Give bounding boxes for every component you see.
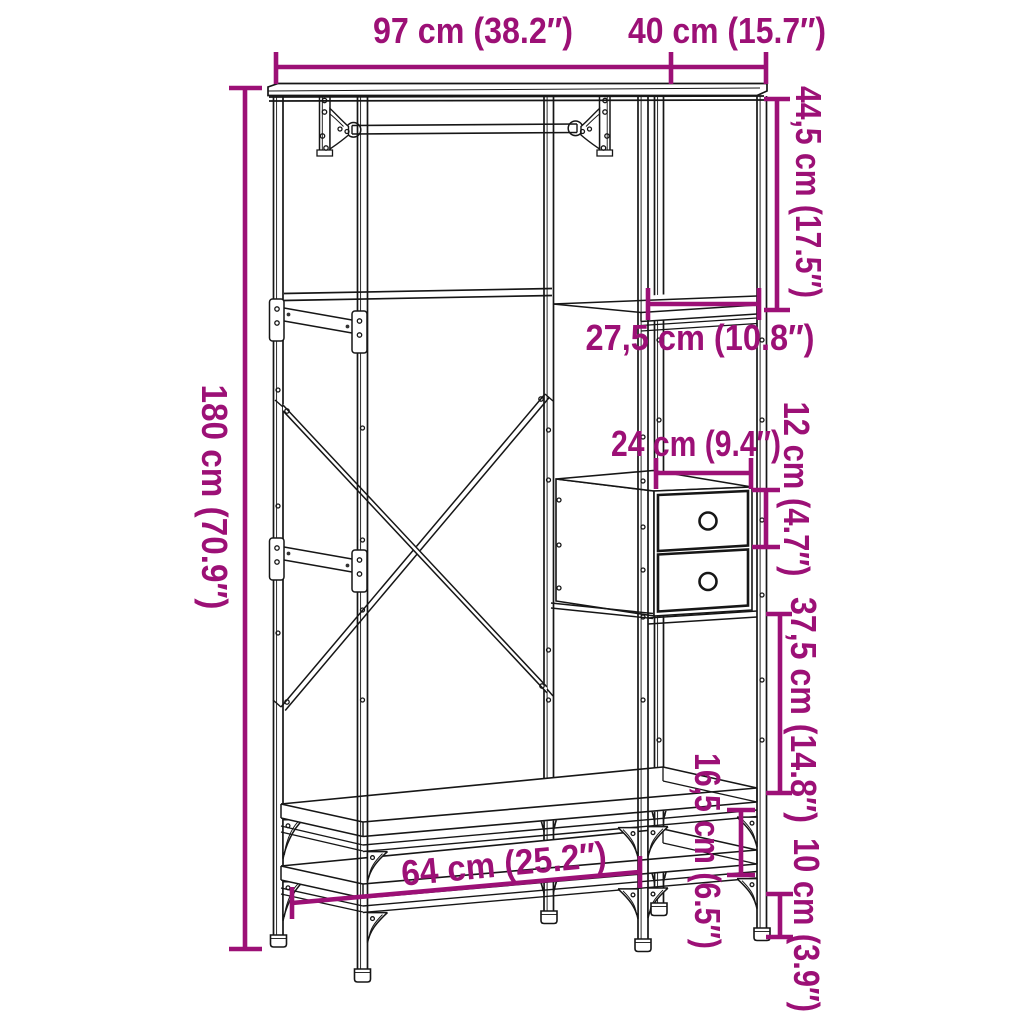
svg-text:44,5 cm (17.5″): 44,5 cm (17.5″)	[788, 86, 829, 298]
svg-text:27,5 cm (10.8″): 27,5 cm (10.8″)	[586, 317, 815, 358]
svg-text:37,5 cm (14.8″): 37,5 cm (14.8″)	[783, 597, 824, 823]
svg-text:40 cm (15.7″): 40 cm (15.7″)	[628, 10, 826, 51]
svg-text:12 cm (4.7″): 12 cm (4.7″)	[776, 402, 817, 577]
svg-text:24 cm (9.4″): 24 cm (9.4″)	[611, 423, 781, 464]
svg-text:180 cm (70.9″): 180 cm (70.9″)	[194, 385, 235, 610]
svg-text:10 cm (3.9″): 10 cm (3.9″)	[786, 838, 827, 1012]
svg-text:97 cm (38.2″): 97 cm (38.2″)	[373, 10, 573, 51]
svg-text:16,5 cm (6.5″): 16,5 cm (6.5″)	[687, 753, 728, 949]
